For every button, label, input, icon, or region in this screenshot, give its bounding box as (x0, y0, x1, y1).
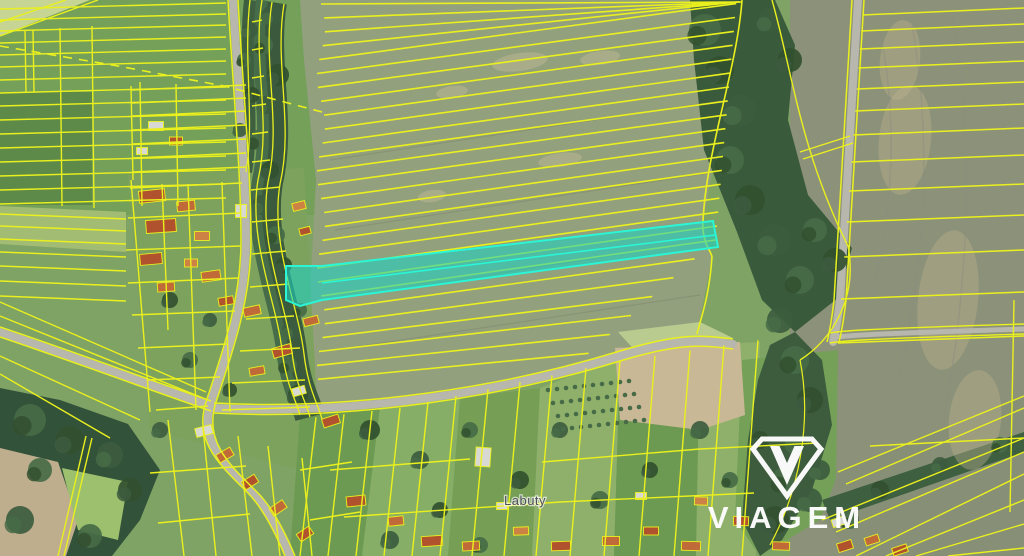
map-viewport[interactable]: Labuty VIAGEM (0, 0, 1024, 556)
place-label: Labuty (504, 493, 546, 508)
satellite-cadastral-map[interactable]: Labuty VIAGEM (0, 0, 1024, 556)
viagem-logo-text: VIAGEM (708, 500, 866, 535)
